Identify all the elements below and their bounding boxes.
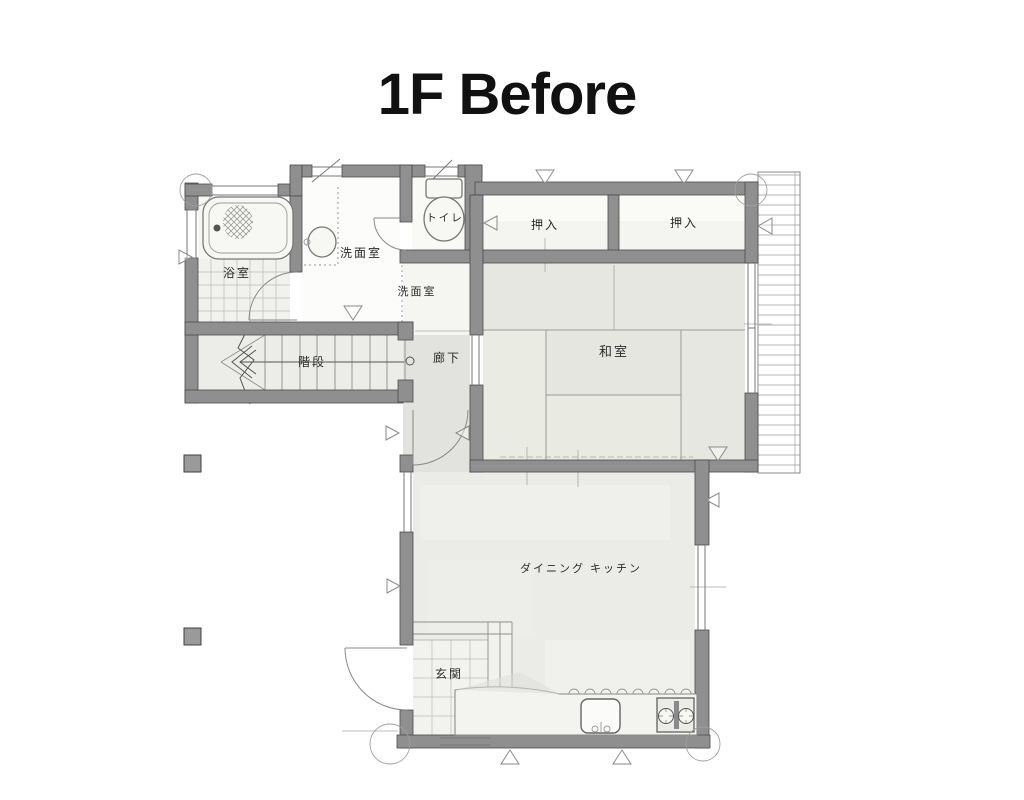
wall [470,460,758,472]
washbasin [308,227,336,257]
porch-post [184,455,201,472]
bathroom-side-window [187,210,196,258]
floor-plan-page: 1F Before [0,0,1024,800]
toilet-tank [426,179,462,198]
wall [400,532,413,645]
bathtub-mosaic [223,205,253,239]
japanese-room-sliding-door [748,263,755,393]
wall [302,165,312,177]
marker-triangle-right [387,579,400,593]
washroom-label: 洗面室 [340,245,382,260]
floor-plan-svg: 1F Before [0,0,1024,800]
wall [398,322,413,340]
wall [475,182,758,195]
bathroom-label: 浴室 [223,265,251,280]
stairs-label: 階段 [298,354,326,369]
tatami-center-top-mat [546,330,681,395]
japanese-room-label: 和室 [599,344,629,359]
entrance-door [345,648,407,710]
wall [400,455,413,472]
wall [400,250,758,263]
hallway-sliding-door [472,335,479,385]
deck-planks [758,172,800,473]
washroom-annex-label: 洗面室 [398,284,437,298]
wall [278,184,290,196]
bathroom-top-window [212,186,278,195]
wall [470,195,483,335]
wall [290,165,302,196]
closet-left-label: 押入 [531,218,559,232]
porch-post [184,628,201,645]
page-title: 1F Before [378,62,637,127]
wall [695,460,709,545]
wall [745,182,758,263]
entrance-label: 玄関 [435,666,463,681]
dining-floor-streak [420,485,670,540]
wall [398,380,413,402]
wall [185,322,413,335]
marker-triangle-up [501,750,519,764]
wall [185,184,212,196]
dining-floor-streak [425,560,535,635]
tatami-right-mat [681,330,745,460]
tatami-left-mat [483,330,546,460]
wall [470,385,483,472]
closet-right-label: 押入 [670,216,698,230]
tatami-center-bottom-mat [546,395,681,460]
marker-triangle-up [613,750,631,764]
kitchen-sink [581,699,620,733]
wall [412,165,425,177]
toilet-label: トイレ [426,212,464,224]
marker-triangle-right [386,426,399,440]
bathtub-drain [214,225,221,232]
wall [400,165,412,222]
dining-right-window [698,545,705,630]
closet-divider-wall [608,195,619,255]
dining-floor-streak [545,640,690,695]
dining-left-window [404,472,411,532]
wall [397,735,710,748]
wall [185,390,403,403]
dining-kitchen-label: ダイニング キッチン [520,561,642,575]
hallway-label: 廊下 [433,350,461,365]
